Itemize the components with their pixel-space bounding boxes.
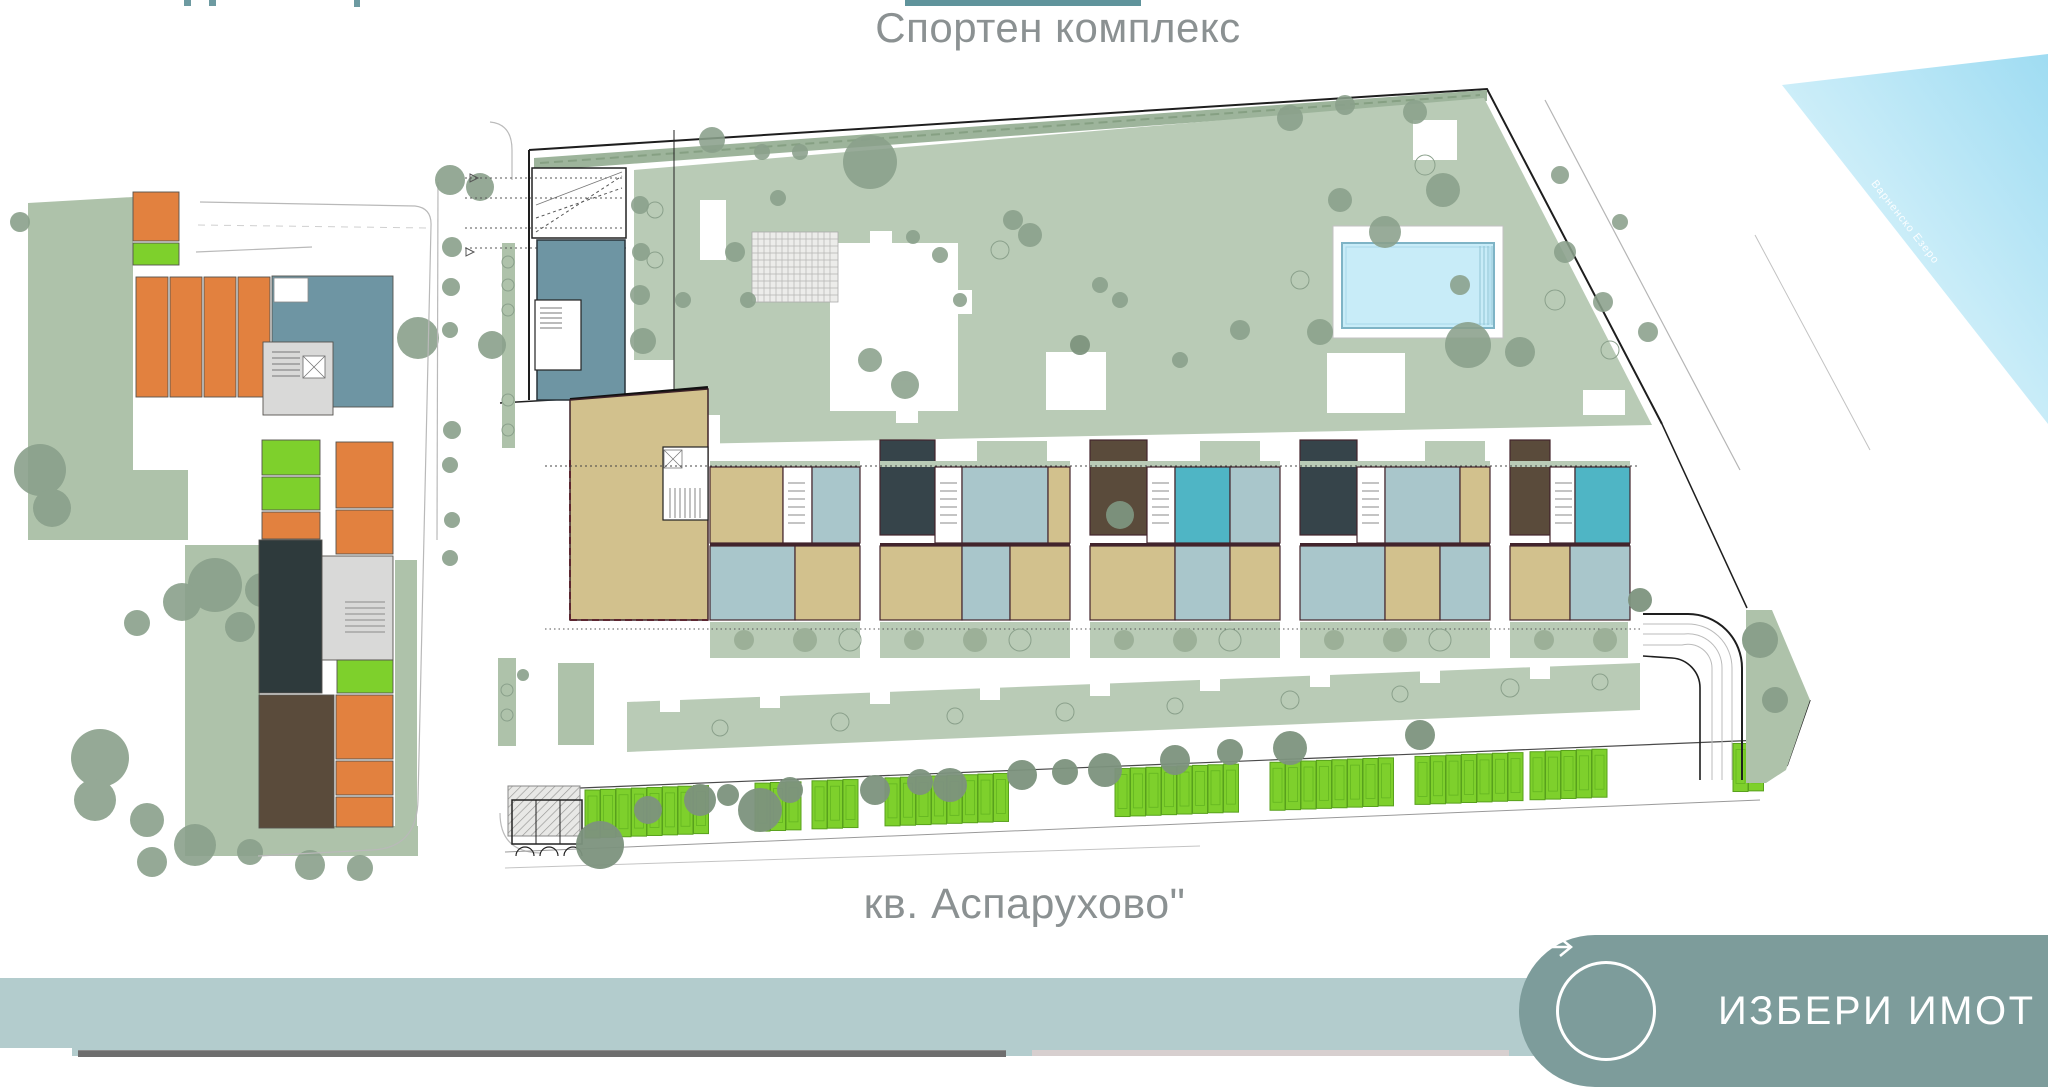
sports-complex-label: Спортен комплекс: [828, 4, 1288, 52]
east-green-wedge: [1742, 610, 1810, 783]
district-label: кв. Аспарухово": [852, 880, 1197, 929]
main-site-plan[interactable]: [435, 89, 1810, 869]
pergola: [752, 232, 838, 302]
choose-property-button[interactable]: ИЗБЕРИ ИМОТ: [1519, 935, 2048, 1087]
south-green-strip: [627, 663, 1640, 752]
kindergarten-building[interactable]: [570, 389, 708, 620]
choose-property-label: ИЗБЕРИ ИМОТ: [1718, 989, 2036, 1034]
bike-shelter: [508, 786, 582, 856]
arrow-right-icon: [1556, 961, 1656, 1061]
nav-text-remnant: [184, 0, 191, 6]
bottom-pink-bar: [1032, 1050, 1509, 1056]
band-notch: [0, 1048, 72, 1056]
swimming-pool: [1333, 226, 1503, 338]
nav-text-remnant: [354, 0, 360, 7]
nav-text-remnant: [209, 0, 216, 6]
apartment-row[interactable]: [710, 440, 1630, 658]
east-exit-road: [1643, 614, 1742, 780]
site-plan-page: Спортен комплекс Варненско Езеро кв. Асп…: [0, 0, 2048, 1056]
